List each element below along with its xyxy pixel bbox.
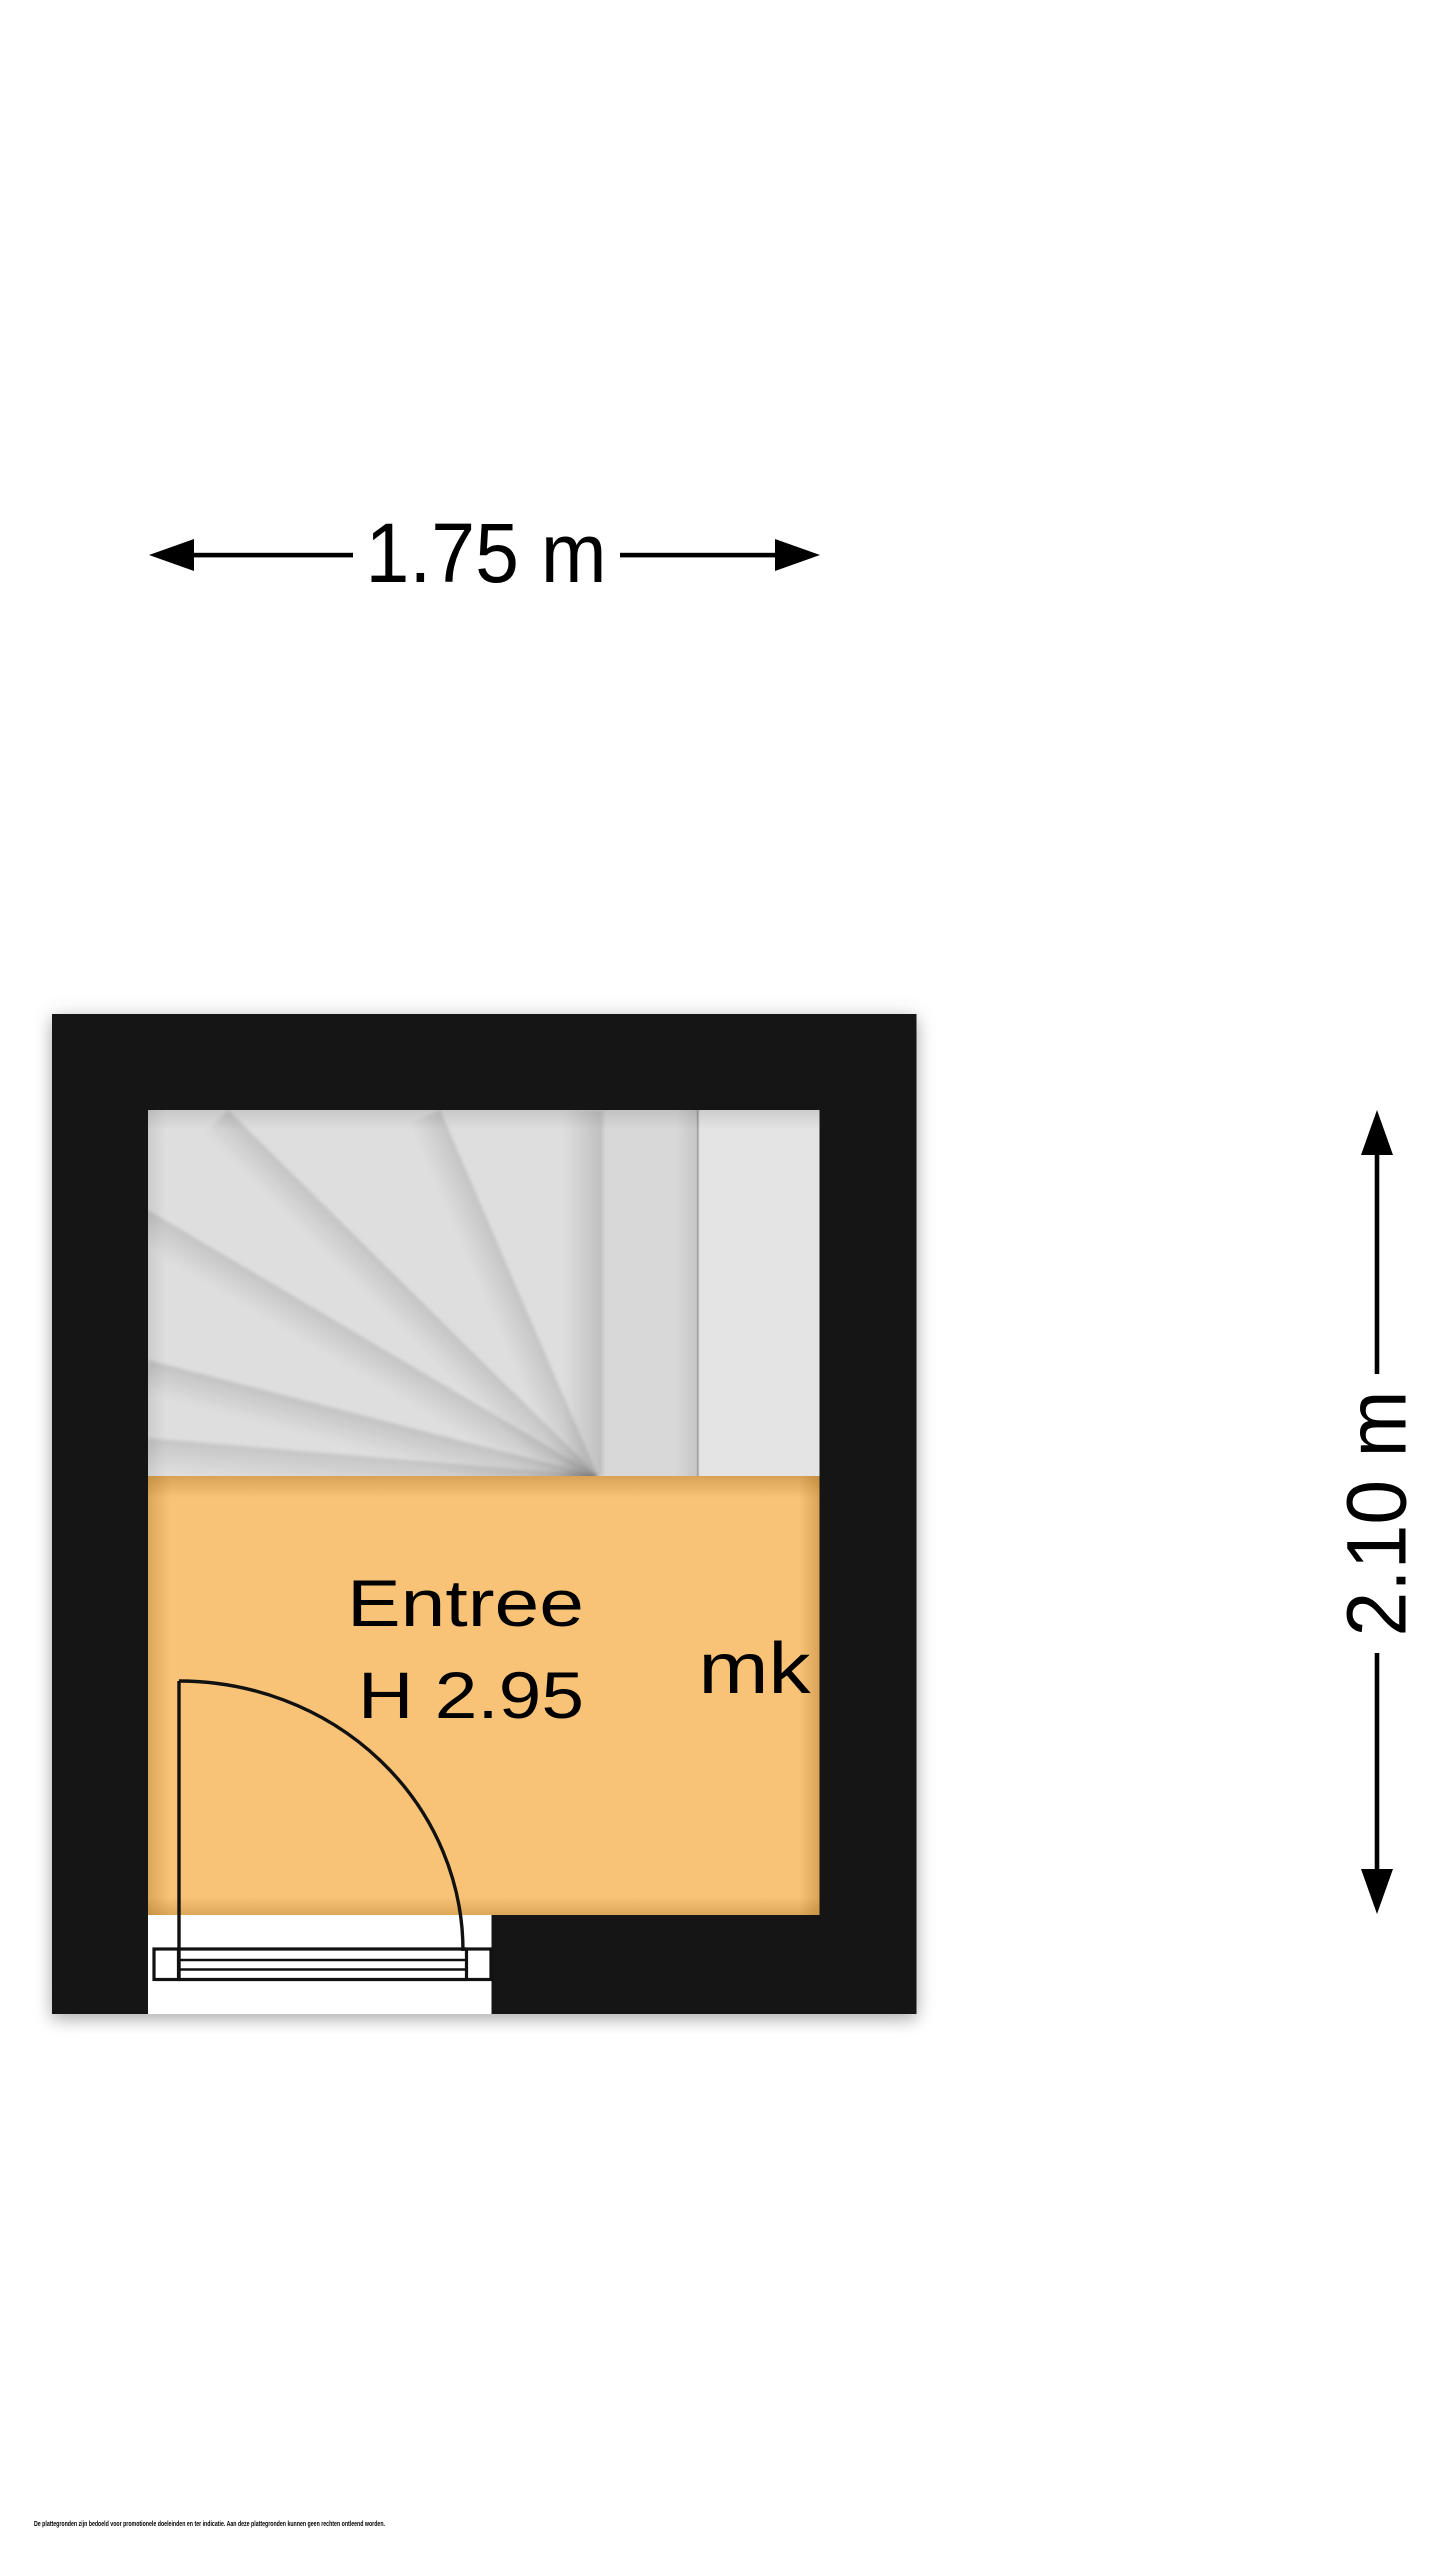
svg-text:1.75 m: 1.75 m [366, 506, 607, 600]
svg-text:Entree: Entree [347, 1566, 584, 1640]
svg-text:mk: mk [699, 1629, 812, 1709]
svg-text:H 2.95: H 2.95 [358, 1658, 584, 1732]
svg-text:2.10 m: 2.10 m [1330, 1391, 1424, 1637]
svg-text:De plattegronden zijn bedoeld: De plattegronden zijn bedoeld voor promo… [34, 2519, 385, 2528]
